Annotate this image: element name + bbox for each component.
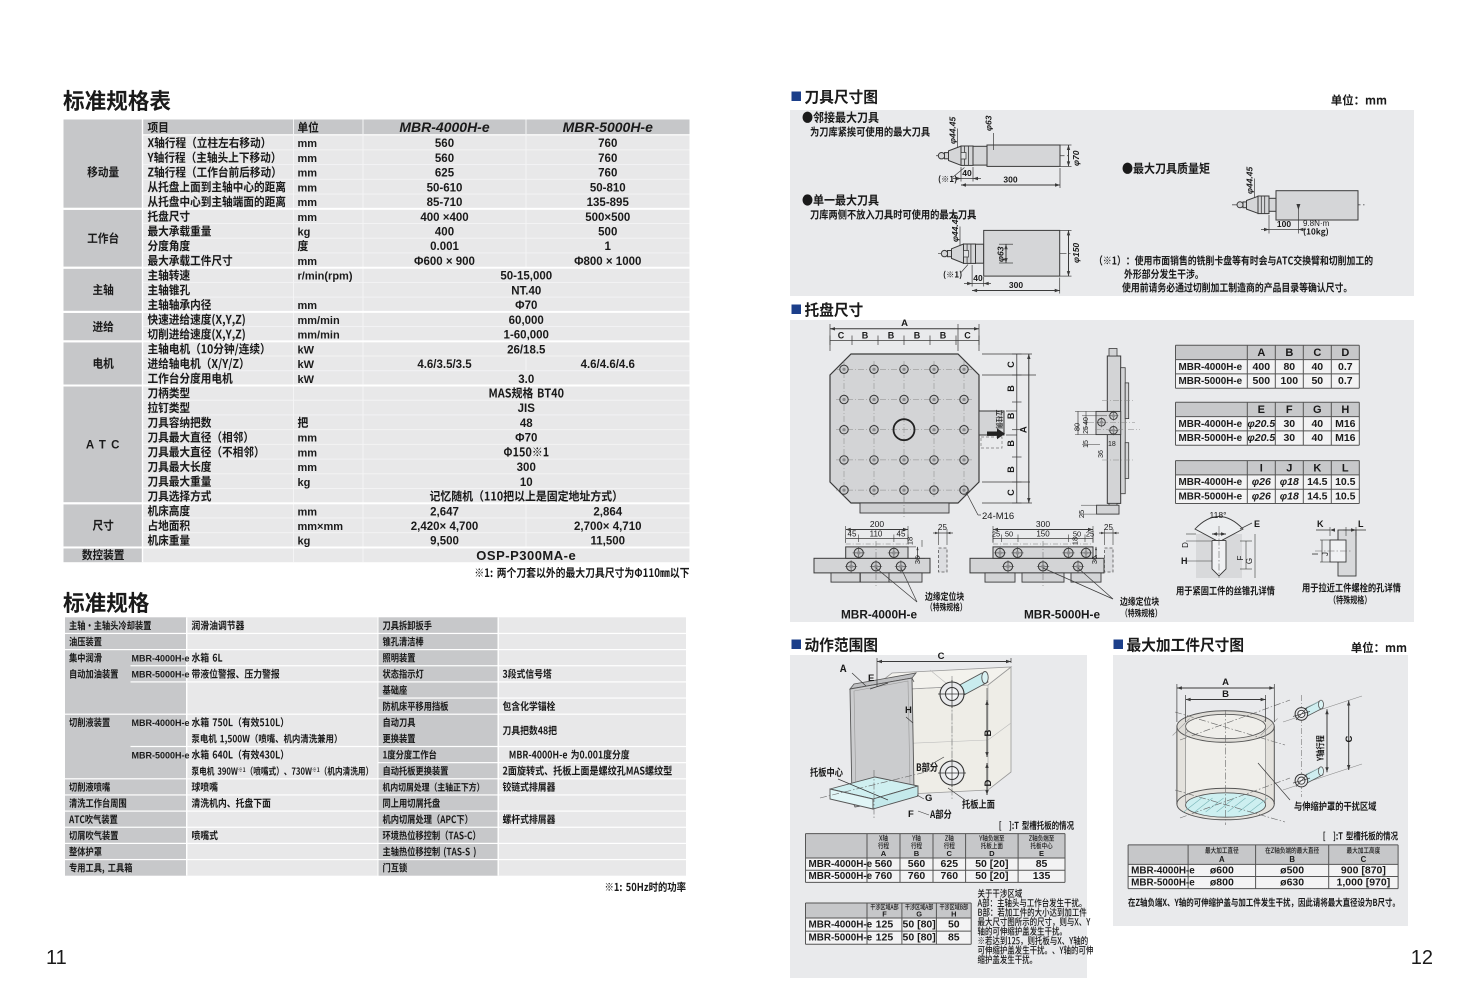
svg-text:80: 80	[1283, 361, 1295, 373]
svg-text:40: 40	[1311, 432, 1323, 444]
svg-text:110: 110	[870, 530, 883, 539]
svg-text:150: 150	[1036, 530, 1050, 539]
svg-text:mm: mm	[298, 138, 318, 150]
svg-text:10.5: 10.5	[1335, 476, 1356, 488]
svg-text:A: A	[1219, 855, 1225, 864]
svg-text:mm: mm	[298, 168, 318, 180]
svg-text:MBR-4000H-e: MBR-4000H-e	[1131, 865, 1195, 876]
svg-text:25: 25	[1086, 530, 1094, 539]
svg-text:mm: mm	[298, 447, 318, 459]
svg-text:25: 25	[1104, 523, 1113, 532]
svg-text:A: A	[901, 318, 908, 329]
svg-text:560: 560	[435, 153, 454, 165]
svg-text:2,647: 2,647	[430, 506, 459, 518]
svg-text:14.5: 14.5	[1307, 491, 1328, 503]
svg-text:25: 25	[1083, 426, 1090, 434]
svg-text:K: K	[1317, 519, 1324, 529]
svg-text:G: G	[1313, 404, 1322, 416]
svg-text:100: 100	[1281, 375, 1299, 387]
svg-text:D: D	[1341, 347, 1349, 359]
svg-text:9.8N·m: 9.8N·m	[1303, 219, 1330, 228]
svg-text:C: C	[1006, 361, 1016, 368]
svg-text:36: 36	[1098, 450, 1105, 458]
svg-text:200: 200	[870, 519, 884, 529]
svg-text:ø500: ø500	[1280, 864, 1304, 876]
svg-text:C: C	[1361, 855, 1367, 864]
svg-text:MBR-4000H-e: MBR-4000H-e	[1179, 419, 1243, 430]
svg-text:B: B	[1006, 385, 1016, 392]
svg-text:φ150: φ150	[1071, 243, 1081, 263]
svg-text:kW: kW	[298, 374, 315, 386]
svg-text:kg: kg	[298, 536, 311, 548]
svg-text:25: 25	[938, 523, 947, 532]
svg-text:Φ800 × 1000: Φ800 × 1000	[574, 256, 641, 268]
svg-text:4.6/4.6/4.6: 4.6/4.6/4.6	[581, 359, 635, 371]
svg-text:φ26: φ26	[1252, 476, 1271, 488]
svg-text:mm: mm	[298, 212, 318, 224]
svg-text:φ44.45: φ44.45	[948, 116, 958, 144]
svg-text:400: 400	[1253, 361, 1271, 373]
svg-text:300: 300	[517, 462, 536, 474]
svg-text:B: B	[940, 330, 947, 340]
svg-text:A: A	[1222, 677, 1229, 688]
svg-text:50: 50	[948, 918, 960, 930]
svg-text:r/min(rpm): r/min(rpm)	[298, 271, 353, 283]
svg-text:C: C	[1006, 489, 1016, 496]
svg-text:11: 11	[46, 947, 67, 969]
svg-text:Φ70: Φ70	[515, 433, 537, 445]
svg-text:40: 40	[973, 273, 983, 283]
svg-text:φ18: φ18	[1280, 491, 1299, 503]
svg-text:MBR-5000H-e: MBR-5000H-e	[1179, 433, 1243, 444]
svg-text:E: E	[868, 673, 874, 684]
svg-text:MBR-5000H-e: MBR-5000H-e	[809, 871, 873, 882]
svg-text:30: 30	[1283, 418, 1295, 430]
svg-text:400: 400	[435, 227, 454, 239]
svg-text:F: F	[908, 809, 914, 820]
svg-text:F: F	[1236, 555, 1245, 560]
svg-text:MBR-5000H-e: MBR-5000H-e	[1131, 877, 1195, 888]
svg-text:kg: kg	[298, 477, 311, 489]
svg-text:45: 45	[848, 530, 857, 539]
svg-text:14.5: 14.5	[1307, 476, 1328, 488]
svg-text:ø800: ø800	[1210, 876, 1234, 888]
svg-text:C: C	[1344, 735, 1355, 742]
svg-text:A: A	[1019, 426, 1030, 433]
svg-text:mm×mm: mm×mm	[298, 521, 344, 533]
svg-text:50-610: 50-610	[427, 182, 463, 194]
svg-text:100: 100	[1277, 219, 1291, 229]
svg-text:B: B	[888, 330, 895, 340]
svg-text:15: 15	[1083, 440, 1090, 448]
svg-text:JIS: JIS	[518, 403, 536, 415]
svg-text:500: 500	[1253, 375, 1271, 387]
svg-text:MBR-4000H-e: MBR-4000H-e	[841, 608, 917, 622]
svg-text:MBR-4000H-e: MBR-4000H-e	[1179, 362, 1243, 373]
svg-text:900 [870]: 900 [870]	[1341, 864, 1386, 876]
svg-text:K: K	[1313, 462, 1321, 474]
svg-text:F: F	[882, 910, 887, 919]
svg-text:760: 760	[598, 168, 617, 180]
svg-text:G: G	[925, 793, 932, 804]
svg-text:50 [20]: 50 [20]	[975, 870, 1008, 882]
svg-text:mm: mm	[298, 462, 318, 474]
svg-text:2,864: 2,864	[593, 506, 622, 518]
svg-text:mm: mm	[298, 506, 318, 518]
svg-text:J: J	[1286, 462, 1292, 474]
svg-text:50-15,000: 50-15,000	[500, 271, 552, 283]
svg-text:50-810: 50-810	[590, 182, 626, 194]
svg-text:φ63: φ63	[984, 115, 994, 131]
svg-text:500×500: 500×500	[585, 212, 630, 224]
svg-text:2,420× 4,700: 2,420× 4,700	[411, 521, 478, 533]
svg-text:L: L	[1358, 519, 1364, 529]
svg-text:80: 80	[1073, 423, 1082, 431]
svg-text:MBR-4000H-e: MBR-4000H-e	[809, 859, 873, 870]
svg-text:kW: kW	[298, 344, 315, 356]
svg-text:18: 18	[1108, 441, 1116, 448]
svg-text:φ20.5: φ20.5	[1247, 432, 1275, 444]
svg-text:18: 18	[906, 537, 915, 545]
svg-text:25: 25	[992, 530, 1000, 539]
svg-text:MBR-5000H-e: MBR-5000H-e	[809, 932, 873, 943]
svg-text:1-60,000: 1-60,000	[504, 330, 549, 342]
svg-text:118°: 118°	[1210, 510, 1227, 520]
svg-text:30: 30	[1283, 432, 1295, 444]
svg-text:85: 85	[1036, 858, 1048, 870]
svg-text:B: B	[1006, 440, 1016, 447]
svg-text:3.0: 3.0	[518, 374, 534, 386]
svg-text:760: 760	[598, 153, 617, 165]
svg-text:60,000: 60,000	[509, 315, 544, 327]
svg-text:625: 625	[435, 168, 455, 180]
svg-text:kg: kg	[298, 227, 311, 239]
svg-text:mm: mm	[298, 197, 318, 209]
svg-text:MBR-5000H-e: MBR-5000H-e	[132, 670, 190, 680]
svg-text:C: C	[838, 330, 845, 340]
svg-text:mm/min: mm/min	[298, 330, 340, 342]
svg-text:24-M16: 24-M16	[982, 511, 1014, 522]
svg-text:mm: mm	[298, 256, 318, 268]
svg-text:9,500: 9,500	[430, 536, 459, 548]
svg-text:2,700× 4,710: 2,700× 4,710	[574, 521, 641, 533]
svg-text:36: 36	[1090, 556, 1099, 564]
svg-text:D: D	[1181, 542, 1190, 548]
svg-text:MBR-4000H-e: MBR-4000H-e	[132, 654, 190, 664]
svg-text:H: H	[1181, 556, 1188, 566]
svg-text:40: 40	[1083, 417, 1090, 425]
svg-text:MBR-5000H-e: MBR-5000H-e	[1179, 492, 1243, 503]
svg-text:B: B	[862, 330, 869, 340]
svg-text:φ70: φ70	[1071, 150, 1081, 166]
svg-text:40: 40	[1311, 418, 1323, 430]
svg-text:MBR-4000H-e: MBR-4000H-e	[1179, 477, 1243, 488]
svg-text:NT.40: NT.40	[511, 285, 541, 297]
svg-text:11,500: 11,500	[590, 536, 625, 548]
svg-text:40: 40	[1311, 361, 1323, 373]
svg-text:I: I	[1260, 462, 1263, 474]
svg-text:85: 85	[948, 931, 960, 943]
svg-text:G: G	[916, 910, 922, 919]
svg-text:φ20.5: φ20.5	[1247, 418, 1275, 430]
svg-text:50: 50	[1005, 530, 1013, 539]
svg-text:D: D	[983, 779, 994, 786]
svg-text:F: F	[1286, 404, 1293, 416]
svg-text:760: 760	[598, 138, 617, 150]
svg-text:M16: M16	[1335, 418, 1356, 430]
svg-text:400 ×400: 400 ×400	[420, 212, 468, 224]
svg-text:0.7: 0.7	[1338, 361, 1353, 373]
svg-text:L: L	[1342, 462, 1349, 474]
svg-text:mm: mm	[298, 182, 318, 194]
svg-text:760: 760	[941, 870, 959, 882]
svg-text:mm: mm	[298, 153, 318, 165]
svg-text:H: H	[905, 705, 912, 716]
svg-text:625: 625	[941, 858, 959, 870]
svg-text:4.6/3.5/3.5: 4.6/3.5/3.5	[417, 359, 472, 371]
svg-text:MBR-5000H-e: MBR-5000H-e	[1179, 376, 1243, 387]
svg-text:12: 12	[1411, 947, 1433, 969]
svg-text:B: B	[914, 330, 921, 340]
svg-text:A: A	[1257, 347, 1265, 359]
svg-text:B: B	[1285, 347, 1293, 359]
svg-text:0.001: 0.001	[430, 241, 459, 253]
svg-text:125: 125	[876, 931, 894, 943]
svg-text:φ18: φ18	[1280, 476, 1299, 488]
svg-text:C: C	[938, 651, 945, 662]
svg-text:H: H	[1341, 404, 1349, 416]
svg-text:18: 18	[1071, 537, 1080, 545]
svg-text:85-710: 85-710	[427, 197, 463, 209]
svg-text:φ26: φ26	[1252, 491, 1271, 503]
svg-text:50 [80]: 50 [80]	[903, 918, 936, 930]
svg-text:560: 560	[435, 138, 454, 150]
svg-text:135: 135	[1033, 870, 1051, 882]
svg-text:C: C	[1313, 347, 1321, 359]
svg-text:1,000 [970]: 1,000 [970]	[1337, 876, 1391, 888]
svg-text:Φ600 × 900: Φ600 × 900	[414, 256, 475, 268]
svg-text:J: J	[1321, 552, 1330, 556]
svg-text:ø600: ø600	[1210, 864, 1234, 876]
svg-text:C: C	[964, 330, 971, 340]
svg-text:48: 48	[520, 418, 533, 430]
svg-text:Φ70: Φ70	[515, 300, 537, 312]
svg-text:B: B	[1006, 466, 1016, 473]
svg-text:mm: mm	[298, 433, 318, 445]
svg-text:I: I	[1311, 553, 1320, 555]
svg-text:50 [20]: 50 [20]	[975, 858, 1008, 870]
svg-text:G: G	[1245, 558, 1254, 564]
svg-text:A T C: A T C	[86, 439, 121, 451]
svg-text:MBR-4000H-e: MBR-4000H-e	[809, 919, 873, 930]
svg-text:135-895: 135-895	[587, 197, 630, 209]
svg-text:mm: mm	[298, 300, 318, 312]
svg-text:10: 10	[520, 477, 533, 489]
svg-text:φ44.45: φ44.45	[1245, 166, 1255, 194]
svg-text:50: 50	[1311, 375, 1323, 387]
svg-text:560: 560	[908, 858, 926, 870]
svg-text:MBR-5000H-e: MBR-5000H-e	[1024, 608, 1100, 622]
svg-text:760: 760	[908, 870, 926, 882]
svg-text:mm/min: mm/min	[298, 315, 340, 327]
svg-text:560: 560	[875, 858, 893, 870]
svg-text:26/18.5: 26/18.5	[507, 344, 546, 356]
svg-text:B: B	[1289, 855, 1295, 864]
svg-text:MBR-4000H-e: MBR-4000H-e	[132, 718, 190, 728]
svg-text:φ63: φ63	[996, 246, 1006, 262]
svg-text:500: 500	[598, 227, 617, 239]
svg-text:MBR-5000H-e: MBR-5000H-e	[563, 119, 653, 135]
svg-text:10.5: 10.5	[1335, 491, 1356, 503]
svg-text:125: 125	[876, 918, 894, 930]
svg-text:B: B	[1006, 412, 1016, 419]
svg-text:50 [80]: 50 [80]	[903, 931, 936, 943]
svg-text:MBR-5000H-e: MBR-5000H-e	[132, 750, 190, 760]
svg-text:B: B	[983, 729, 994, 736]
svg-text:300: 300	[1036, 519, 1050, 529]
svg-text:1: 1	[605, 241, 612, 253]
svg-text:760: 760	[875, 870, 893, 882]
svg-text:OSP-P300MA-e: OSP-P300MA-e	[476, 548, 576, 563]
svg-text:E: E	[1258, 404, 1265, 416]
svg-text:M16: M16	[1335, 432, 1356, 444]
svg-text:H: H	[951, 910, 956, 919]
svg-text:0.7: 0.7	[1338, 375, 1353, 387]
svg-text:B: B	[1222, 689, 1229, 700]
svg-text:kW: kW	[298, 359, 315, 371]
svg-text:E: E	[1254, 519, 1260, 529]
svg-text:300: 300	[1003, 175, 1017, 185]
svg-text:300: 300	[1009, 280, 1023, 290]
svg-text:40: 40	[962, 168, 972, 178]
svg-text:ø630: ø630	[1280, 876, 1304, 888]
svg-text:MBR-4000H-e: MBR-4000H-e	[399, 119, 489, 135]
